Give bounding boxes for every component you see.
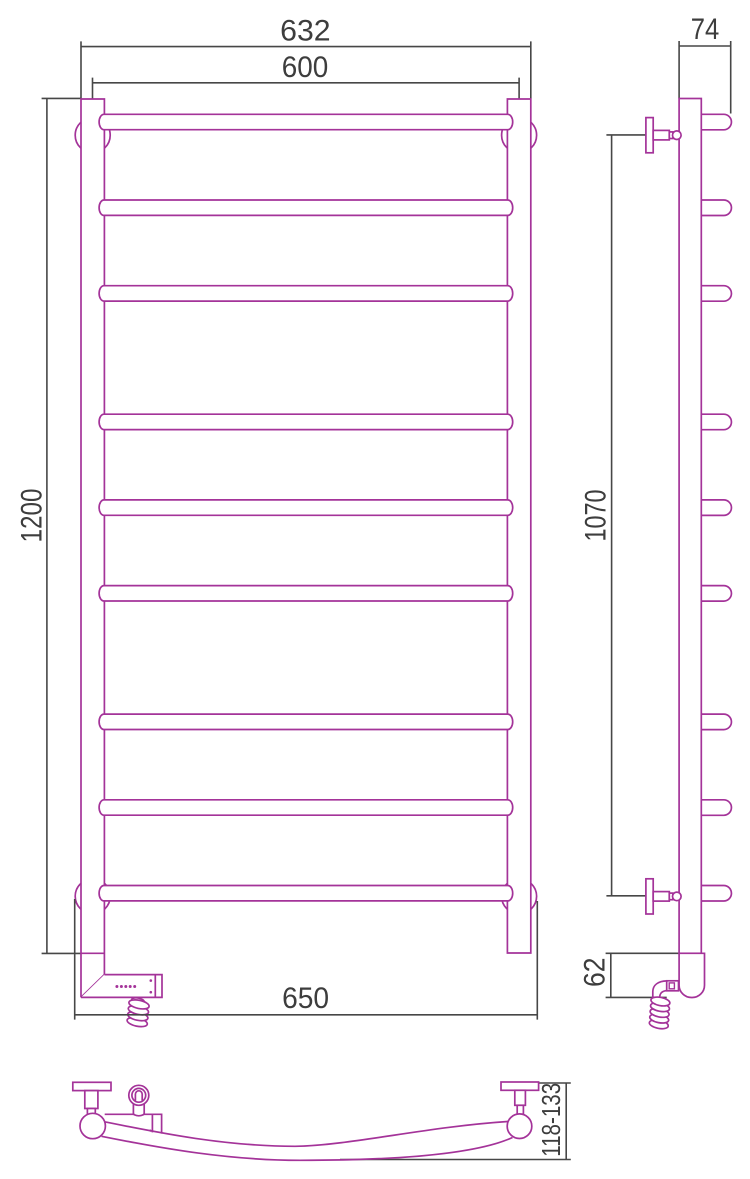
svg-text:632: 632	[280, 14, 331, 47]
svg-text:62: 62	[579, 957, 612, 987]
svg-text:118-133: 118-133	[538, 1083, 566, 1157]
svg-text:74: 74	[691, 13, 720, 46]
svg-text:600: 600	[282, 51, 329, 84]
svg-text:650: 650	[282, 982, 329, 1015]
svg-text:1200: 1200	[15, 489, 48, 543]
svg-text:1070: 1070	[580, 490, 613, 542]
